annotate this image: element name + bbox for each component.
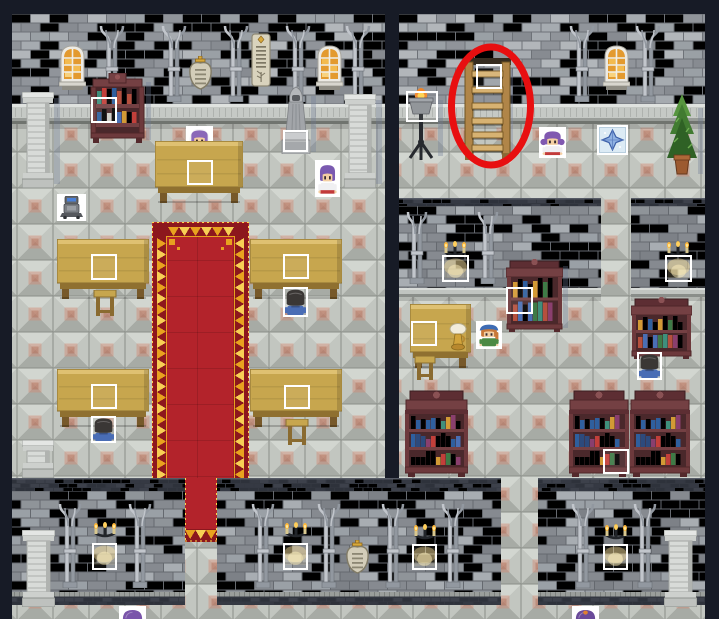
- wall-sconce-4: [283, 522, 309, 540]
- bookshelf-big-3: [630, 388, 690, 477]
- divider-wall-left-ledge: [399, 288, 601, 297]
- stone-crest-top: [187, 56, 213, 90]
- gothic-arch-16: [570, 502, 596, 588]
- gothic-arch-13: [316, 502, 342, 588]
- top-wall-right-ledge: [399, 104, 705, 124]
- event-box-sconce-2[interactable]: [665, 255, 692, 282]
- gothic-arch-5: [344, 24, 372, 102]
- divider-wall-left-cap: [399, 198, 601, 206]
- event-box-desk-3[interactable]: [91, 384, 117, 409]
- event-box-sconce-1[interactable]: [442, 255, 469, 282]
- bookshelf-right-2: [631, 295, 692, 359]
- event-box-student-2[interactable]: [91, 416, 116, 443]
- event-box-desk-1[interactable]: [91, 254, 117, 280]
- marble-pillar-2: [344, 94, 376, 188]
- bottom-wall-cap-b: [217, 478, 501, 491]
- event-box-bookshelf-right-1[interactable]: [506, 287, 533, 314]
- red-carpet-runner: [185, 478, 217, 542]
- event-box-statue[interactable]: [283, 130, 308, 152]
- robot-device: [59, 196, 84, 219]
- gothic-arch-9: [476, 210, 500, 284]
- gothic-arch-8: [405, 210, 429, 284]
- shadow-pillar-2: [376, 100, 382, 184]
- stool-2: [285, 419, 309, 447]
- shadow-pillar-1: [54, 98, 60, 184]
- event-box-sconce-4[interactable]: [283, 543, 308, 570]
- stone-crest-bottom: [344, 540, 373, 578]
- wall-sconce-6: [603, 524, 629, 542]
- event-box-desk-4[interactable]: [284, 385, 310, 409]
- event-box-sconce-3[interactable]: [92, 543, 117, 570]
- floor-bottom-strip: [12, 605, 705, 619]
- character-girl-cap[interactable]: [477, 322, 501, 348]
- red-carpet: [152, 222, 249, 478]
- shadow-plant: [698, 108, 703, 174]
- stool-3: [414, 356, 436, 382]
- wall-shade-3: [399, 297, 601, 301]
- wall-sconce-3: [92, 522, 118, 540]
- character-girl-white[interactable]: [316, 161, 339, 196]
- gothic-arch-15: [440, 502, 466, 588]
- top-wall-left-ledge: [12, 104, 385, 124]
- marble-pillar-1: [22, 92, 54, 188]
- bottom-wall-cap-a: [12, 478, 185, 491]
- annotation-circle: [447, 42, 537, 170]
- character-bottom-1[interactable]: [120, 607, 145, 619]
- gothic-arch-11: [127, 502, 153, 588]
- gothic-arch-6: [568, 24, 596, 102]
- gothic-arch-17: [632, 502, 658, 588]
- potted-plant: [666, 92, 698, 182]
- shadow-brazier: [438, 100, 443, 156]
- event-box-study-desk[interactable]: [411, 321, 437, 346]
- gothic-arch-12: [250, 502, 276, 588]
- event-box-student-3[interactable]: [637, 352, 662, 380]
- floor-corridor-right: [501, 478, 538, 605]
- bookshelf-big-1: [405, 388, 468, 477]
- event-box-brazier[interactable]: [406, 91, 438, 122]
- divider-wall-left: [399, 206, 601, 288]
- shadow-bookshelf-left: [146, 82, 151, 140]
- gothic-arch-7: [634, 24, 662, 102]
- character-bottom-2[interactable]: [573, 607, 598, 619]
- shadow-statue: [311, 96, 316, 152]
- window-3: [603, 44, 630, 90]
- window-1: [59, 44, 86, 90]
- event-box-sconce-6[interactable]: [603, 544, 628, 570]
- gothic-arch-2: [160, 24, 188, 102]
- divider-wall-right-cap: [631, 198, 705, 206]
- ice-crystal-picture[interactable]: [597, 125, 628, 155]
- character-girl-pigtails[interactable]: [540, 128, 565, 157]
- gothic-arch-14: [380, 502, 406, 588]
- stool-1: [93, 290, 117, 318]
- marble-pillar-5: [664, 530, 697, 607]
- wall-sconce-5: [412, 524, 438, 542]
- bottom-wall-base-b: [217, 592, 501, 605]
- marble-pillar-3: [22, 440, 54, 478]
- window-2: [316, 44, 343, 90]
- event-box-desk-2[interactable]: [283, 254, 309, 279]
- shadow-bookshelf-right-1: [563, 266, 568, 328]
- event-box-bookshelf-big-2[interactable]: [603, 449, 629, 474]
- event-box-bookshelf-left[interactable]: [91, 97, 117, 123]
- event-box-teacher-desk[interactable]: [187, 160, 213, 185]
- event-box-sconce-5[interactable]: [412, 544, 437, 570]
- marble-pillar-4: [22, 530, 55, 607]
- stone-tablet: [251, 32, 271, 88]
- event-box-student-1[interactable]: [283, 287, 308, 317]
- gothic-arch-3: [222, 24, 250, 102]
- floor-doorway-corridor: [601, 196, 631, 304]
- gothic-arch-10: [57, 502, 83, 588]
- game-map: [0, 0, 719, 619]
- gold-lamp: [449, 321, 467, 351]
- bottom-wall-cap-c: [538, 478, 705, 491]
